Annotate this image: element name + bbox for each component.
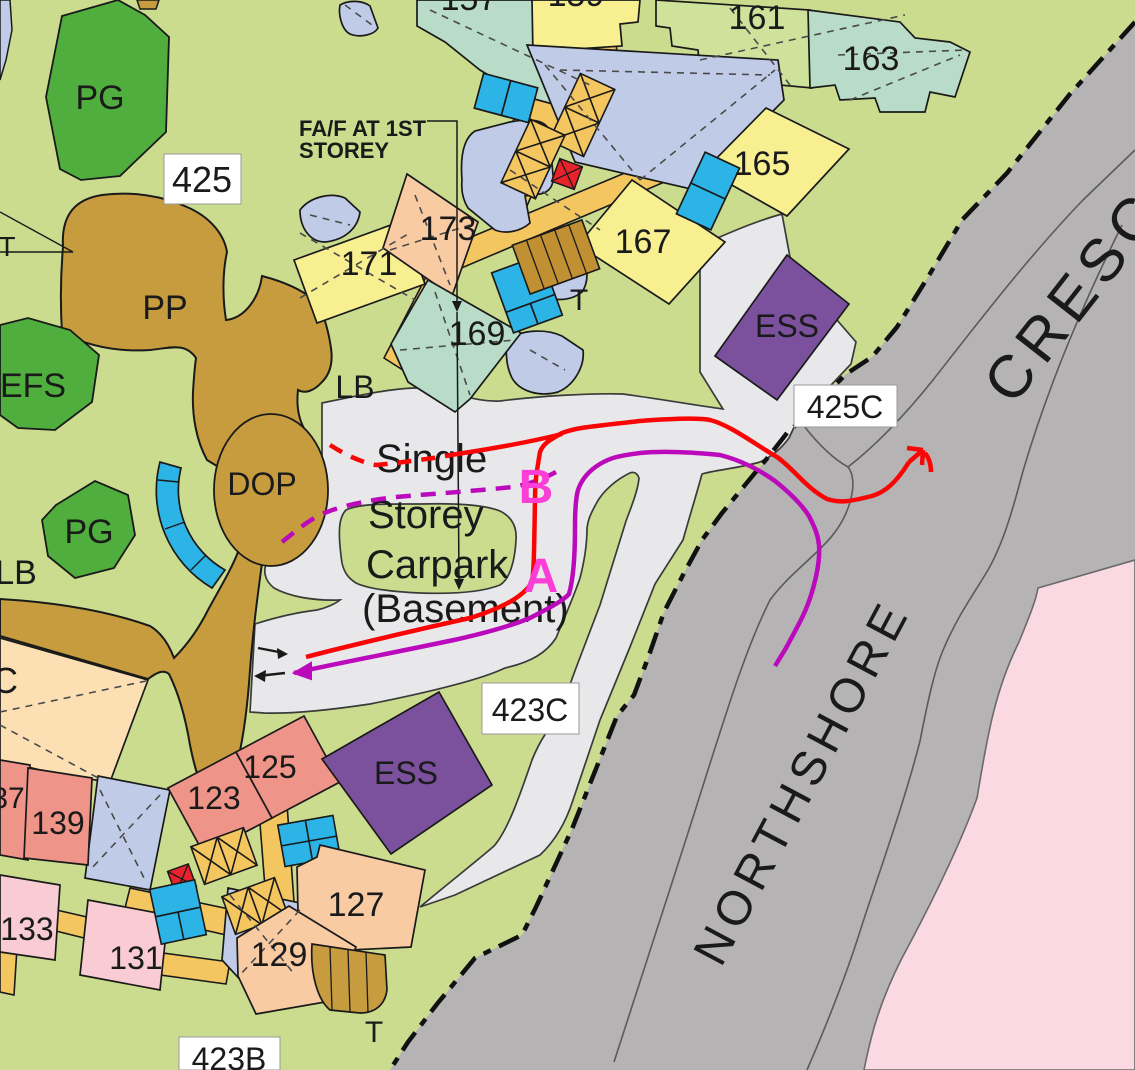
svg-text:T: T — [0, 231, 16, 262]
svg-text:B: B — [519, 461, 554, 514]
svg-text:123: 123 — [187, 780, 240, 816]
svg-text:LB: LB — [335, 369, 374, 405]
svg-text:165: 165 — [734, 145, 791, 183]
svg-text:Carpark: Carpark — [366, 543, 509, 587]
svg-text:425: 425 — [172, 159, 232, 200]
svg-text:T: T — [365, 1016, 383, 1049]
svg-text:T: T — [570, 284, 588, 317]
svg-text:423B: 423B — [192, 1041, 267, 1070]
svg-text:163: 163 — [843, 40, 900, 78]
svg-text:133: 133 — [0, 911, 53, 947]
svg-text:159: 159 — [548, 0, 605, 14]
svg-text:173: 173 — [420, 210, 477, 248]
svg-text:127: 127 — [328, 886, 385, 924]
svg-text:C: C — [0, 660, 18, 701]
svg-text:171: 171 — [341, 245, 398, 283]
svg-text:125: 125 — [243, 749, 296, 785]
svg-text:STOREY: STOREY — [299, 138, 389, 163]
svg-text:PP: PP — [142, 289, 187, 327]
svg-text:A: A — [524, 550, 559, 603]
svg-text:DOP: DOP — [227, 466, 296, 502]
svg-text:161: 161 — [729, 0, 786, 37]
svg-text:131: 131 — [109, 940, 162, 976]
svg-text:PG: PG — [75, 79, 124, 117]
svg-text:157: 157 — [441, 0, 498, 18]
svg-text:LB: LB — [0, 554, 37, 592]
svg-text:EFS: EFS — [0, 367, 66, 405]
svg-text:PG: PG — [64, 513, 113, 551]
svg-text:425C: 425C — [807, 389, 884, 425]
svg-text:423C: 423C — [492, 692, 569, 728]
svg-text:ESS: ESS — [755, 308, 819, 344]
svg-text:ESS: ESS — [374, 755, 438, 791]
svg-text:129: 129 — [251, 936, 308, 974]
svg-text:167: 167 — [615, 223, 672, 261]
svg-text:139: 139 — [31, 805, 84, 841]
svg-text:37: 37 — [0, 782, 25, 815]
